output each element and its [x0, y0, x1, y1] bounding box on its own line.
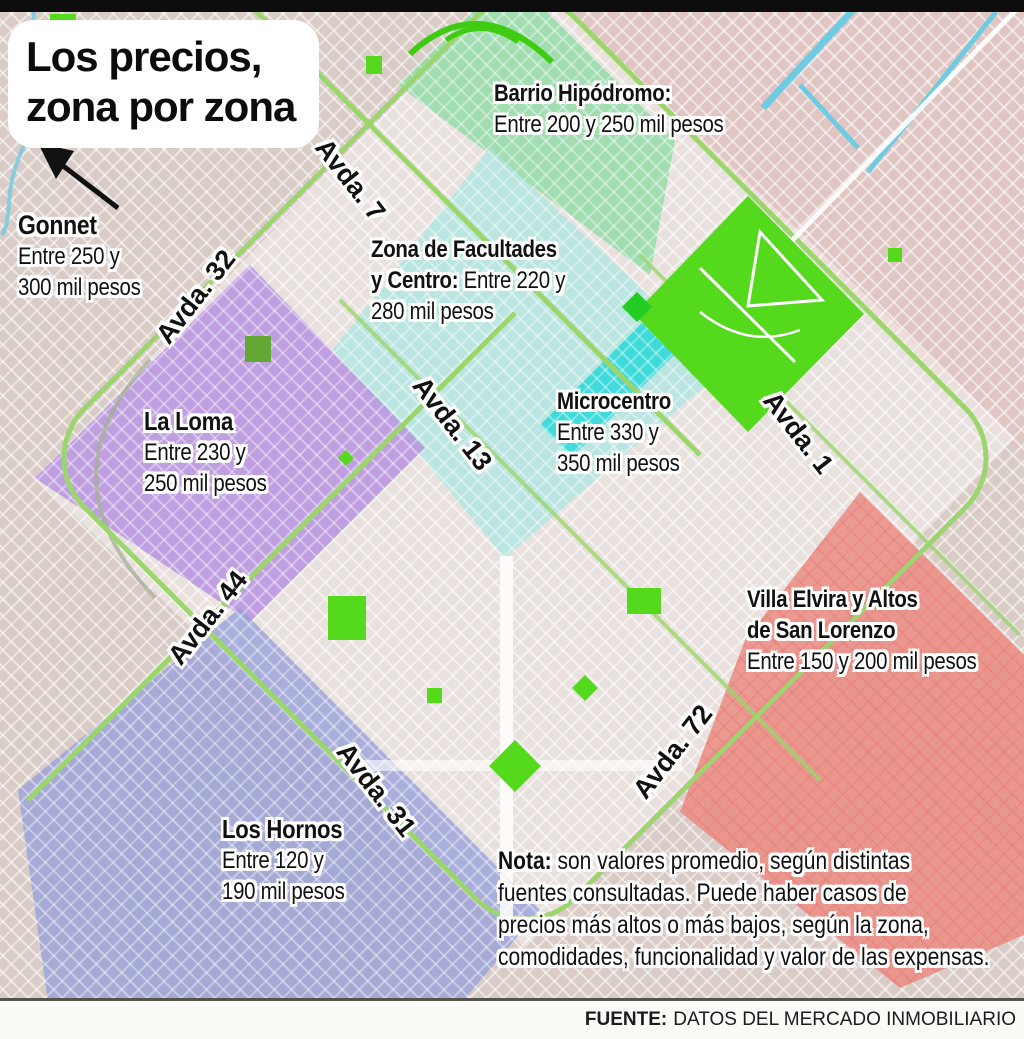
- label-la-loma: La Loma Entre 230 y 250 mil pesos: [144, 406, 267, 499]
- price-map-infographic: Los precios, zona por zona Gonnet Entre …: [0, 0, 1024, 1039]
- page-title-line1: Los precios,: [26, 32, 295, 82]
- source-bar: FUENTE: DATOS DEL MERCADO INMOBILIARIO: [0, 998, 1024, 1039]
- source-label: FUENTE:: [585, 1009, 667, 1031]
- source-text: DATOS DEL MERCADO INMOBILIARIO: [673, 1009, 1016, 1031]
- title-card: Los precios, zona por zona: [8, 20, 319, 148]
- page-title-line2: zona por zona: [26, 82, 295, 132]
- label-gonnet: Gonnet Entre 250 y 300 mil pesos: [18, 210, 141, 303]
- label-facultades: Zona de Facultades y Centro: Entre 220 y…: [371, 234, 565, 327]
- note-text: Nota: son valores promedio, según distin…: [498, 845, 989, 973]
- top-black-bar: [0, 0, 1024, 12]
- label-los-hornos: Los Hornos Entre 120 y 190 mil pesos: [222, 814, 345, 907]
- label-villa-elvira: Villa Elvira y Altos de San Lorenzo Entr…: [747, 584, 977, 677]
- label-barrio-hipodromo: Barrio Hipódromo: Entre 200 y 250 mil pe…: [494, 78, 724, 140]
- label-microcentro: Microcentro Entre 330 y 350 mil pesos: [557, 386, 680, 479]
